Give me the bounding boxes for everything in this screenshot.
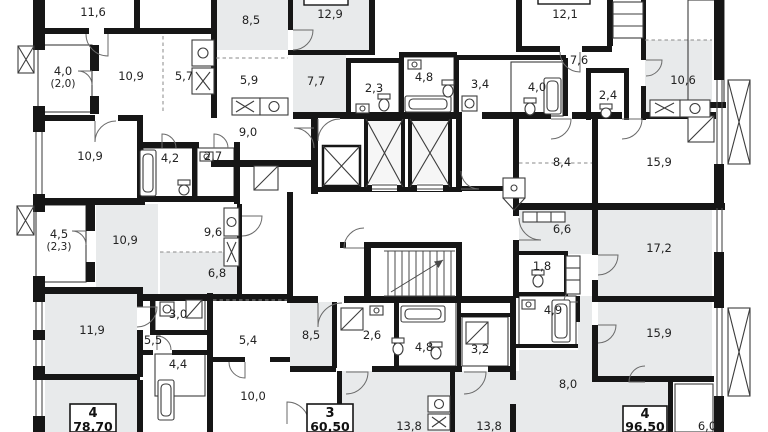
- toilet: [600, 104, 612, 118]
- room-area-label: 5,7: [175, 69, 193, 83]
- room-area-label: 8,4: [553, 155, 571, 169]
- room-area-label: 4,9: [544, 303, 562, 317]
- kitchen-counter: [650, 100, 710, 117]
- toilet: [524, 98, 536, 115]
- toilet: [178, 180, 190, 195]
- apartment-label-60-50: 3 60,50: [307, 404, 353, 432]
- room-area-label: 12,1: [552, 7, 578, 21]
- sink: [522, 300, 535, 309]
- room-area-label: 4,0: [54, 64, 72, 78]
- shower: [688, 116, 714, 142]
- x-box-top-left: [18, 46, 34, 73]
- apartment-label-78-70: 4 78,70: [70, 404, 116, 432]
- kitchen-counter: [224, 208, 239, 266]
- room-area-label: 6,8: [208, 266, 226, 280]
- x-box-right-upper: [728, 80, 750, 164]
- apartment-area: 96,50: [625, 419, 665, 432]
- clipped-apartment-label: [304, 0, 348, 5]
- floor-plan-drawing: 4 78,70 3 60,50 4 96,50 11,610,95,74,0(2…: [0, 0, 768, 432]
- washing-machine: [462, 96, 477, 111]
- room-area-label: 2,6: [363, 328, 381, 342]
- room-area-label: 10,9: [112, 233, 138, 247]
- elevator-shaft-2: [410, 119, 450, 191]
- bathtub: [140, 150, 156, 196]
- kitchen-counter: [232, 98, 288, 115]
- room-area-label: 12,9: [317, 7, 343, 21]
- room-area-label: 6,0: [698, 419, 716, 432]
- room-area-label: 17,2: [646, 241, 672, 255]
- shower: [254, 166, 278, 190]
- stairwell: [384, 251, 455, 296]
- bathtub: [158, 380, 174, 420]
- bathtub: [401, 306, 445, 322]
- room-area-label: 8,5: [302, 328, 320, 342]
- room-area-label: 1,8: [533, 259, 551, 273]
- room-area-label: 3,4: [471, 77, 489, 91]
- room-area-label: 9,0: [239, 125, 257, 139]
- room-area-label: 10,6: [670, 73, 696, 87]
- room-area-label: 10,9: [77, 149, 103, 163]
- refuse-chute-shaft: [323, 146, 360, 186]
- room-area-label: 8,5: [242, 13, 260, 27]
- sink: [370, 306, 383, 315]
- elevator-shaft-1: [366, 119, 403, 191]
- room-area-label: 5,4: [239, 333, 257, 347]
- room-area-label: 9,6: [204, 225, 222, 239]
- room-area-label: 5,9: [240, 73, 258, 87]
- bathtub: [405, 96, 451, 112]
- shower: [466, 322, 488, 344]
- shower: [186, 300, 202, 318]
- room-area-label: 11,6: [80, 5, 106, 19]
- elevator-core: [323, 119, 455, 296]
- room-area-label: 7,7: [307, 74, 325, 88]
- x-box-mid-left: [17, 206, 34, 235]
- room-area-label: 8,0: [559, 377, 577, 391]
- room-area-label: 11,9: [79, 323, 105, 337]
- room-area-label: 4,2: [161, 151, 179, 165]
- stair-direction-arrow: [391, 260, 443, 292]
- room-area-label: 13,8: [396, 419, 422, 432]
- room-area-sublabel: (2,0): [51, 78, 76, 90]
- sink: [356, 104, 369, 113]
- wardrobe: [566, 256, 580, 294]
- room-area-label: 4,0: [528, 80, 546, 94]
- room-area-label: 7,6: [570, 53, 588, 67]
- kitchen-counter: [192, 40, 214, 94]
- room-area-label: 6,6: [553, 222, 571, 236]
- wardrobe: [523, 212, 565, 222]
- room-area-label: 2,4: [599, 88, 617, 102]
- toilet: [392, 338, 404, 355]
- x-box-right-lower: [728, 308, 750, 396]
- room-area-sublabel: (2,3): [47, 241, 72, 253]
- room-area-label: 3,0: [169, 307, 187, 321]
- room-area-label: 10,9: [118, 69, 144, 83]
- shower: [341, 308, 363, 330]
- apartment-label-96-50: 4 96,50: [623, 406, 667, 432]
- clipped-apartment-label: [538, 0, 590, 4]
- wardrobe: [613, 2, 643, 38]
- room-area-label: 3,2: [471, 342, 489, 356]
- floor-plan: 4 78,70 3 60,50 4 96,50 11,610,95,74,0(2…: [0, 0, 768, 432]
- room-area-label: 2,3: [365, 81, 383, 95]
- toilet: [378, 94, 390, 111]
- room-area-label: 4,8: [415, 340, 433, 354]
- bathtub: [544, 78, 561, 114]
- room-area-label: 15,9: [646, 155, 672, 169]
- room-area-label: 10,0: [240, 389, 266, 403]
- toilet: [442, 80, 454, 97]
- room-area-label: 5,5: [144, 333, 162, 347]
- room-area-label: 15,9: [646, 326, 672, 340]
- apartment-area: 60,50: [310, 419, 350, 432]
- room-area-label: 2,7: [204, 149, 222, 163]
- room-area-label: 13,8: [476, 419, 502, 432]
- sink: [408, 60, 421, 69]
- room-area-label: 4,5: [50, 227, 68, 241]
- room-area-label: 4,8: [415, 70, 433, 84]
- apartment-area: 78,70: [73, 419, 113, 432]
- room-area-label: 4,4: [169, 357, 187, 371]
